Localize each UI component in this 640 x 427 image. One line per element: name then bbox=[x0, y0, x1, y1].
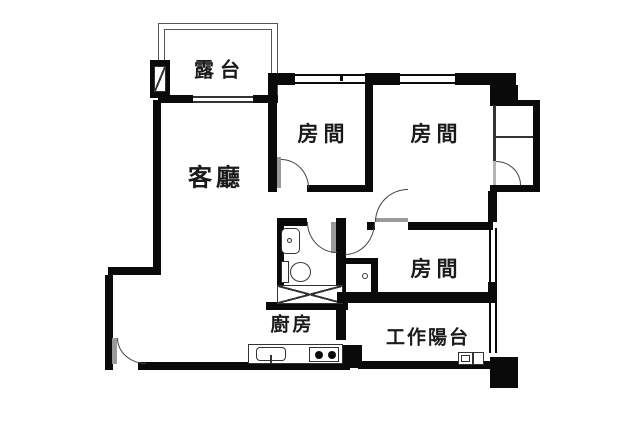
storage-right-wall bbox=[533, 100, 540, 192]
bedroom2-window bbox=[400, 74, 455, 84]
toilet-tank bbox=[281, 261, 289, 283]
entrance-door-leaf bbox=[112, 338, 117, 364]
bedroom1-2-divider bbox=[365, 75, 373, 192]
bedroom1-south-wall bbox=[307, 185, 373, 192]
southeast-pillar bbox=[490, 357, 518, 388]
bedroom3-top-wall bbox=[408, 222, 493, 230]
bathtub bbox=[277, 285, 343, 304]
bedroom1-window bbox=[295, 74, 365, 84]
stove-burner-right bbox=[328, 351, 336, 359]
living-room-west-wall-upper bbox=[153, 100, 161, 271]
east-wall-seg1 bbox=[488, 191, 497, 222]
window-mullion bbox=[340, 76, 343, 81]
closet-door-knob bbox=[362, 273, 368, 279]
bedroom3-label: 房間 bbox=[406, 253, 463, 283]
bedroom1-label: 房間 bbox=[293, 118, 350, 148]
floor-plan: 露台 客廳 房間 房間 房間 廚房 工作陽台 bbox=[0, 0, 640, 427]
kitchen-sink-tap bbox=[270, 355, 272, 363]
northeast-block bbox=[490, 85, 518, 100]
bedroom3-south-wall bbox=[337, 292, 497, 303]
bedroom3-window bbox=[489, 228, 497, 282]
bathtub-cross bbox=[278, 286, 342, 303]
west-wall-jog bbox=[108, 267, 161, 275]
bathroom-top-wall bbox=[277, 218, 307, 226]
storage-divider bbox=[496, 136, 533, 138]
bedroom1-door-arc bbox=[281, 159, 309, 188]
toilet-bowl bbox=[290, 262, 311, 282]
bedroom1-west-wall bbox=[268, 75, 277, 192]
work-balcony-label: 工作陽台 bbox=[384, 323, 470, 350]
north-wall-seg3 bbox=[455, 73, 516, 85]
bathroom-sink-drain bbox=[287, 238, 292, 243]
washing-machine-panel bbox=[461, 355, 470, 362]
stove-burner-left bbox=[315, 351, 323, 359]
terrace-label: 露台 bbox=[188, 54, 246, 83]
bathroom-door-arc bbox=[307, 222, 337, 253]
kitchen-passage-door-arc bbox=[345, 222, 375, 255]
entrance-door-arc bbox=[117, 338, 146, 364]
storage-door-arc bbox=[496, 161, 521, 185]
living-room-label: 客廳 bbox=[184, 158, 244, 193]
terrace-sliding-door bbox=[193, 96, 253, 103]
bedroom2-label: 房間 bbox=[406, 118, 463, 148]
balcony-window bbox=[489, 303, 497, 353]
washing-machine-divider bbox=[472, 352, 474, 365]
storage-bottom-wall bbox=[490, 185, 540, 192]
bedroom3-hall-door-arc bbox=[375, 189, 408, 222]
terrace-column-window bbox=[154, 66, 166, 92]
storage-left-wall bbox=[493, 105, 496, 161]
kitchen-label: 廚房 bbox=[267, 310, 314, 337]
